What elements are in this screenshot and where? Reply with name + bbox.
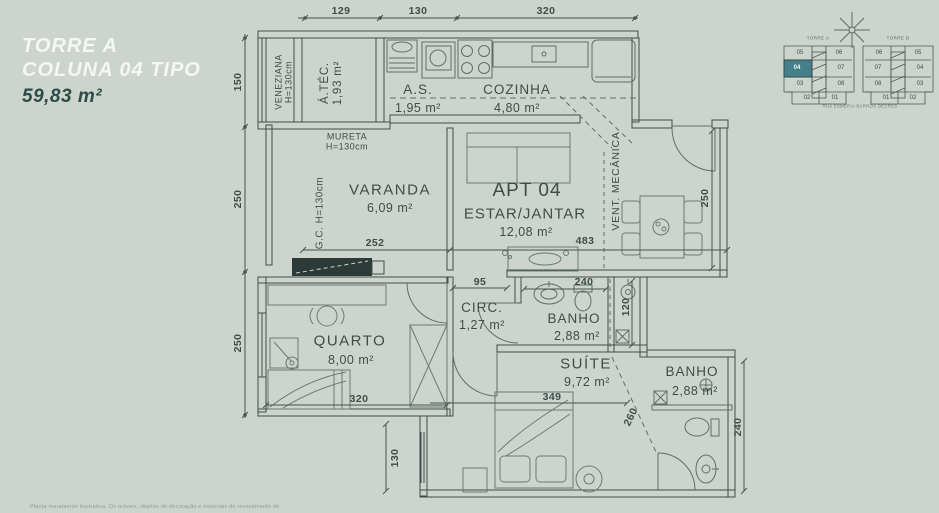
- floor-plan-page: TORRE A COLUNA 04 TIPO 59,83 m² VENEZIAN…: [0, 0, 939, 513]
- dim-shaft-120: 120: [620, 298, 632, 317]
- banho-suite-area: 2,88 m²: [672, 384, 718, 398]
- title-tower: TORRE A: [22, 34, 201, 58]
- banho-area: 2,88 m²: [554, 329, 600, 343]
- minimap-b-unit: 03: [917, 81, 924, 87]
- quarto-label: QUARTO: [314, 332, 387, 349]
- minimap-torre-a: [784, 46, 854, 104]
- vent-mecanica-label: VENT. MECÂNICA: [610, 131, 622, 230]
- minimap-street-label: RUA ESMÉRIA BARROS DECRES: [822, 104, 897, 109]
- minimap-b-unit: 06: [876, 50, 883, 56]
- minimap-a-unit-highlighted: 04: [794, 65, 801, 71]
- minimap-b-unit: 02: [910, 95, 917, 101]
- minimap-a-unit: 03: [797, 81, 804, 87]
- minimap-a-unit: 08: [838, 81, 845, 87]
- dim-banho-240: 240: [575, 276, 594, 288]
- area-tecnica-label: Á.TÉC. 1,93 m²: [319, 61, 345, 106]
- minimap-torre-b-caption: TORRE B: [887, 36, 910, 41]
- cozinha-label: COZINHA: [483, 82, 551, 98]
- minimap-a-unit: 06: [836, 50, 843, 56]
- dim-left-150: 150: [232, 73, 244, 92]
- gc-label: G.C. H=130cm: [314, 177, 326, 249]
- apt-number: APT 04: [492, 180, 561, 202]
- dim-circ-95: 95: [474, 276, 486, 288]
- dark-cabinet: [292, 258, 384, 276]
- circ-area: 1,27 m²: [459, 318, 505, 332]
- dim-top-129: 129: [332, 5, 351, 17]
- mureta-label: MURETA H=130cm: [326, 132, 368, 153]
- plan-title: TORRE A COLUNA 04 TIPO 59,83 m²: [22, 34, 201, 108]
- minimap-b-unit: 08: [875, 81, 882, 87]
- as-area: 1,95 m²: [395, 101, 441, 115]
- veneziana-label: VENEZIANA H=130cm: [274, 54, 295, 110]
- dim-hall-250: 250: [699, 189, 711, 208]
- estar-jantar-label: ESTAR/JANTAR: [464, 205, 586, 222]
- minimap-torre-a-caption: TORRE A: [807, 36, 829, 41]
- minimap-b-unit: 07: [875, 65, 882, 71]
- dim-top-320: 320: [537, 5, 556, 17]
- circ-label: CIRC.: [461, 300, 503, 316]
- minimap-b-unit: 01: [883, 95, 890, 101]
- dim-banho2-240: 240: [732, 418, 744, 437]
- dim-suite-130: 130: [389, 449, 401, 468]
- title-column: COLUNA 04 TIPO: [22, 58, 201, 82]
- banho-suite-label: BANHO: [665, 364, 718, 380]
- minimap-b-unit: 05: [915, 50, 922, 56]
- dim-left-250b: 250: [232, 334, 244, 353]
- suite-label: SUÍTE: [560, 355, 612, 372]
- as-label: A.S.: [403, 82, 433, 98]
- title-area: 59,83 m²: [22, 86, 201, 108]
- dim-left-250a: 250: [232, 190, 244, 209]
- disclaimer-text: Planta meramente ilustrativa. Os móveis,…: [30, 504, 280, 510]
- minimap-b-unit: 04: [917, 65, 924, 71]
- dim-suite-349: 349: [543, 391, 562, 403]
- kitchen-fixtures: [387, 40, 635, 82]
- cozinha-area: 4,80 m²: [494, 101, 540, 115]
- compass-icon: [834, 12, 870, 48]
- minimap-a-unit: 01: [832, 95, 839, 101]
- banho-label: BANHO: [547, 311, 600, 327]
- minimap-torre-b: [863, 46, 933, 104]
- varanda-label: VARANDA: [349, 181, 431, 198]
- dim-varanda-252: 252: [366, 237, 385, 249]
- estar-jantar-area: 12,08 m²: [499, 225, 552, 239]
- dim-quarto-320: 320: [350, 393, 369, 405]
- dim-top-130: 130: [409, 5, 428, 17]
- minimap-a-unit: 02: [804, 95, 811, 101]
- minimap-a-unit: 07: [838, 65, 845, 71]
- minimap-a-unit: 05: [797, 50, 804, 56]
- varanda-area: 6,09 m²: [367, 201, 413, 215]
- dim-estar-483: 483: [576, 235, 595, 247]
- quarto-area: 8,00 m²: [328, 353, 374, 367]
- suite-area: 9,72 m²: [564, 375, 610, 389]
